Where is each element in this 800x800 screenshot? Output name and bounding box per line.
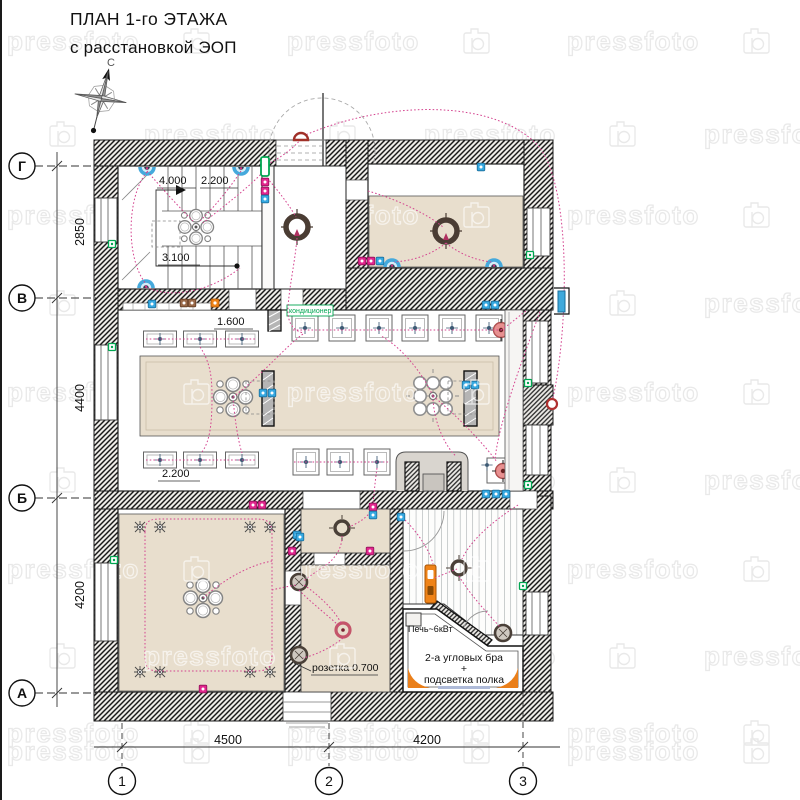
svg-text:Печь~6кВт: Печь~6кВт (408, 624, 453, 634)
svg-text:Г: Г (18, 158, 26, 174)
svg-text:С: С (107, 57, 115, 69)
svg-text:1.600: 1.600 (217, 316, 245, 328)
svg-text:с расстановкой ЭОП: с расстановкой ЭОП (70, 38, 237, 57)
svg-text:1: 1 (118, 773, 126, 789)
svg-text:А: А (17, 685, 27, 701)
svg-text:2850: 2850 (73, 218, 87, 246)
svg-text:В: В (17, 290, 27, 306)
svg-text:4200: 4200 (73, 581, 87, 609)
svg-text:2: 2 (325, 773, 333, 789)
svg-text:2.200: 2.200 (162, 468, 190, 480)
svg-text:ПЛАН 1-го ЭТАЖА: ПЛАН 1-го ЭТАЖА (70, 9, 228, 29)
svg-text:3.100: 3.100 (162, 252, 190, 264)
svg-text:4.000: 4.000 (159, 175, 187, 187)
svg-text:3: 3 (519, 773, 527, 789)
svg-text:4200: 4200 (413, 733, 441, 747)
svg-text:4500: 4500 (214, 733, 242, 747)
svg-text:подсветка полка: подсветка полка (424, 674, 504, 686)
svg-text:Б: Б (17, 490, 27, 506)
svg-text:4400: 4400 (73, 384, 87, 412)
svg-text:2.200: 2.200 (201, 175, 229, 187)
svg-text:кондиционер: кондиционер (289, 308, 331, 315)
